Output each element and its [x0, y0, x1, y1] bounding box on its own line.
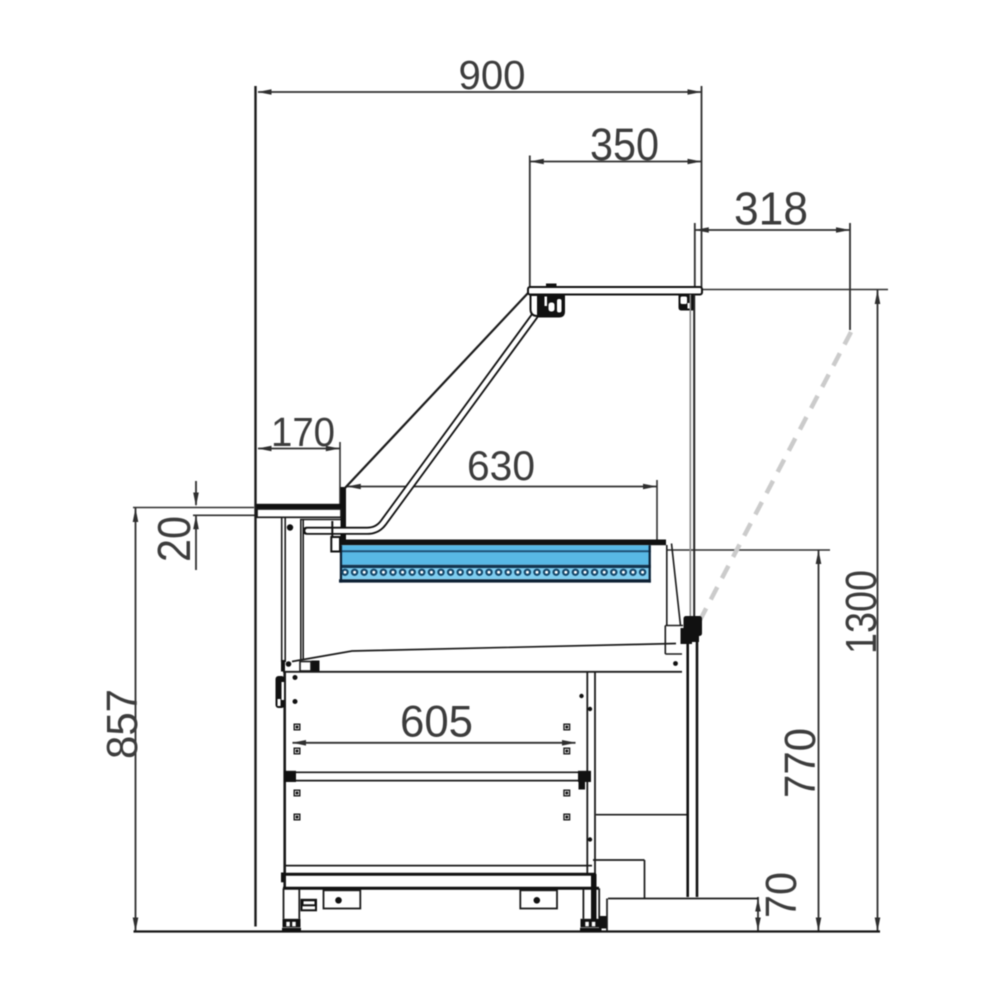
svg-text:857: 857	[98, 689, 147, 759]
svg-text:70: 70	[757, 872, 806, 918]
svg-text:605: 605	[400, 698, 473, 747]
svg-text:630: 630	[467, 442, 535, 489]
svg-text:170: 170	[271, 409, 335, 455]
svg-text:900: 900	[459, 52, 526, 98]
svg-text:20: 20	[148, 516, 200, 562]
svg-text:1300: 1300	[837, 570, 886, 654]
svg-text:770: 770	[776, 728, 825, 798]
svg-text:350: 350	[590, 119, 659, 170]
svg-text:318: 318	[734, 183, 808, 235]
